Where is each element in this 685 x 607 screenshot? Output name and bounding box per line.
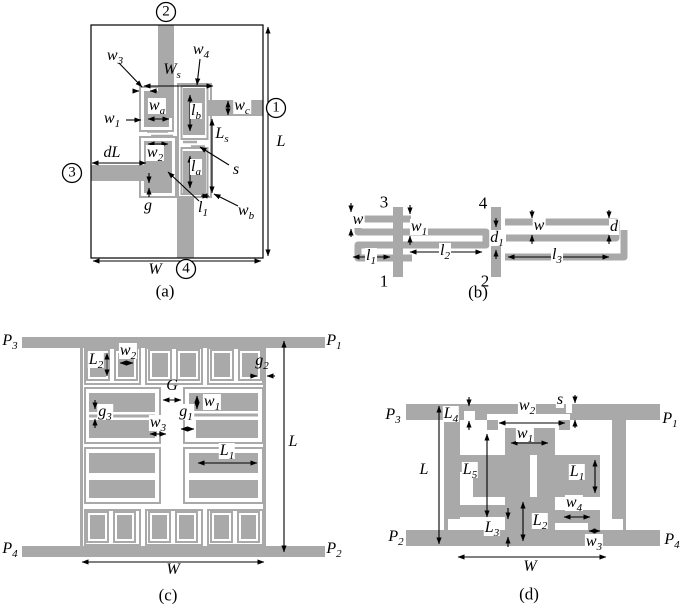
label-a-w1: w1 <box>104 111 120 127</box>
label-a-L: L <box>277 134 286 150</box>
label-a-wa: wa <box>148 98 166 114</box>
label-b-l1: l1 <box>365 248 377 264</box>
label-a-Ws: Ws <box>163 62 181 78</box>
label-d-L4: L4 <box>443 406 459 422</box>
label-a-Ls: Ls <box>215 126 228 142</box>
label-a-w3: w3 <box>107 48 123 64</box>
label-c-P2: P2 <box>326 541 341 557</box>
label-c-L1: L1 <box>219 443 235 459</box>
label-d-s: s <box>556 392 564 408</box>
caption-c: (c) <box>159 587 178 604</box>
label-d-L3: L3 <box>484 520 500 536</box>
label-c-w1: w1 <box>203 394 221 410</box>
label-a-w4: w4 <box>193 42 209 58</box>
port-4-number: 4 <box>182 262 190 277</box>
label-b-w-right: w <box>533 218 546 234</box>
label-d-P4: P4 <box>664 532 679 548</box>
port-2-number: 2 <box>162 5 170 20</box>
label-b-d: d <box>609 219 619 235</box>
label-d-P3: P3 <box>385 407 400 423</box>
label-a-W: W <box>148 262 161 278</box>
caption-d: (d) <box>519 586 539 603</box>
port-1-number: 1 <box>272 101 280 116</box>
label-b-w1: w1 <box>410 219 428 235</box>
figure-geometry <box>0 0 685 607</box>
fig-c-metal <box>22 337 325 557</box>
label-a-g: g <box>144 198 152 214</box>
label-d-w4: w4 <box>565 495 583 511</box>
label-d-w2: w2 <box>518 398 536 414</box>
label-a-wb: wb <box>238 203 254 219</box>
label-d-w3: w3 <box>585 534 603 550</box>
label-c-g3: g3 <box>97 404 113 420</box>
caption-b: (b) <box>468 284 488 301</box>
label-d-L5: L5 <box>462 462 478 478</box>
label-a-l1: l1 <box>198 200 208 216</box>
label-c-g1: g1 <box>178 404 194 420</box>
label-a-s: s <box>233 162 239 178</box>
label-c-P1: P1 <box>326 333 341 349</box>
label-a-lb: lb <box>190 103 202 119</box>
label-b-w-left: w <box>352 212 365 228</box>
label-d-L1: L1 <box>569 464 585 480</box>
label-c-G: G <box>166 378 178 394</box>
label-c-P4: P4 <box>2 541 17 557</box>
label-a-dL: dL <box>104 145 121 161</box>
label-c-L2: L2 <box>88 352 104 368</box>
port-3-number: 3 <box>68 166 76 181</box>
label-d-L: L <box>420 462 429 478</box>
label-a-la: la <box>190 159 202 175</box>
label-c-w2: w2 <box>119 343 137 359</box>
fig-b-port-1: 1 <box>380 273 389 290</box>
fig-b-port-4: 4 <box>479 195 488 212</box>
label-d-W: W <box>523 559 536 575</box>
label-d-P1: P1 <box>662 411 677 427</box>
label-c-L: L <box>289 434 298 450</box>
figure-canvas: 2 1 3 4 w3 w4 Ws wc wa w1 lb Ls dL w2 s … <box>0 0 685 607</box>
label-c-W: W <box>166 562 179 578</box>
caption-a: (a) <box>156 283 175 300</box>
label-a-wc: wc <box>233 98 251 114</box>
label-b-l2: l2 <box>439 243 451 259</box>
label-a-w2: w2 <box>146 145 164 161</box>
label-c-g2: g2 <box>255 353 269 369</box>
label-d-w1: w1 <box>516 426 534 442</box>
fig-b-port-3: 3 <box>380 194 389 211</box>
label-b-l3: l3 <box>551 247 563 263</box>
label-c-w3: w3 <box>149 415 167 431</box>
label-d-P2: P2 <box>388 529 403 545</box>
label-c-P3: P3 <box>2 333 17 349</box>
label-d-L2: L2 <box>532 513 548 529</box>
label-b-d1: d1 <box>489 230 505 246</box>
